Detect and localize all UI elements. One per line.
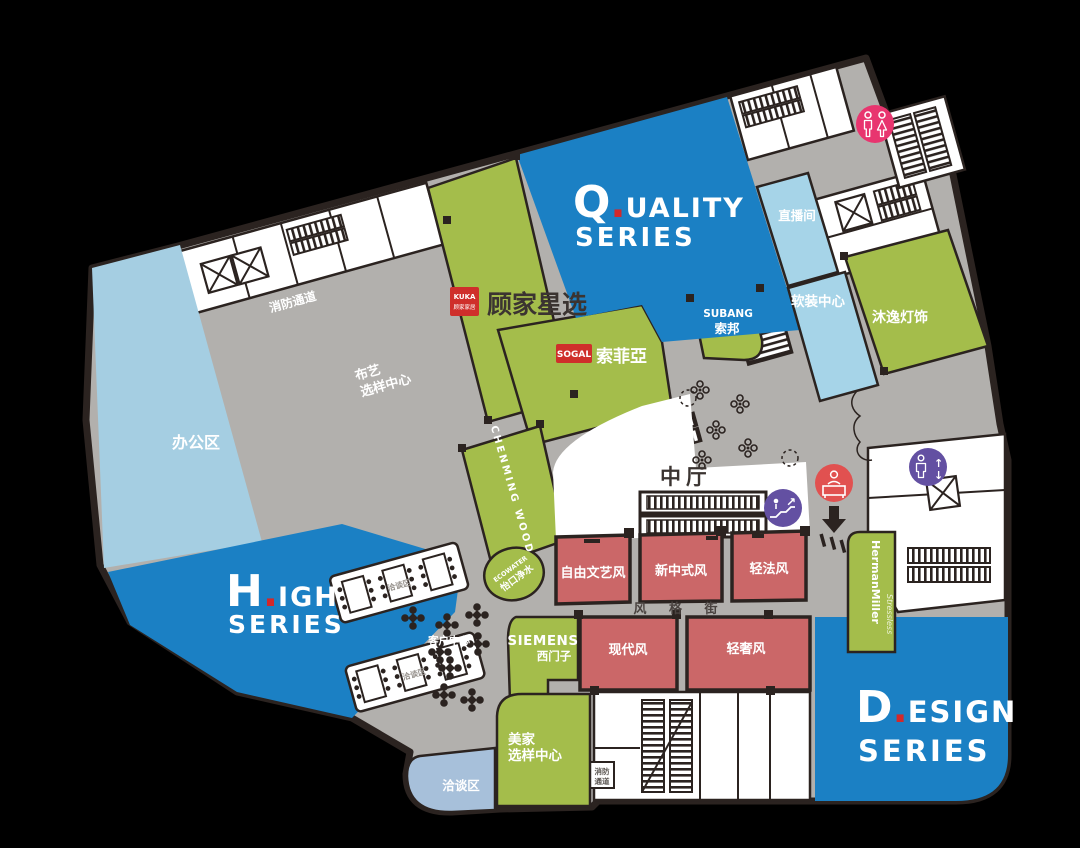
label-hermanmiller: HermanMiller [869, 540, 882, 625]
label-style-street: 风 格 街 [633, 601, 726, 617]
label-meijia-2: 选样中心 [508, 747, 562, 764]
svg-text:KUKA: KUKA [454, 293, 476, 301]
label-room-qingshe: 轻奢风 [726, 641, 765, 657]
floor-plan-svg: ↑ ↓ ↗ Q.UALITY SERIES H.IGH SERIES D.ESI… [0, 0, 1080, 848]
svg-text:顾家家居: 顾家家居 [453, 303, 476, 311]
restroom-icon [856, 105, 894, 143]
label-lounge: 洽谈区 [442, 778, 480, 793]
label-room-qingfa: 轻法风 [749, 561, 788, 577]
label-soft-deco: 软装中心 [791, 293, 845, 310]
staircase [642, 700, 664, 792]
quality-series-sub: SERIES [575, 223, 696, 253]
label-office: 办公区 [172, 433, 220, 452]
label-room-ziyouwenyi: 自由文艺风 [560, 565, 625, 581]
staircase [670, 700, 692, 792]
label-fire-bottom-1: 消防 [595, 766, 610, 776]
label-fire-bottom-2: 通道 [595, 776, 610, 786]
reception-icon [815, 464, 853, 502]
high-series-sub: SERIES [228, 610, 345, 639]
label-live-stream: 直播间 [778, 208, 816, 223]
label-client-center: 客户中心 [427, 634, 470, 647]
kuka-logo: KUKA 顾家家居 [450, 287, 479, 316]
design-series-sub: SERIES [858, 734, 991, 768]
label-room-xinzhongshi: 新中式风 [655, 563, 707, 579]
elevator-box [232, 247, 269, 284]
mall-floor-plan: ↑ ↓ ↗ Q.UALITY SERIES H.IGH SERIES D.ESI… [0, 0, 1080, 848]
label-meijia-1: 美家 [508, 731, 536, 748]
label-room-xiandai: 现代风 [608, 642, 647, 658]
label-central-hall: 中厅 [660, 465, 712, 489]
escalator-icon: ↗ [764, 489, 802, 527]
label-siemens-cn: 西门子 [537, 649, 572, 663]
svg-text:↓: ↓ [934, 469, 943, 482]
label-hermanmiller-sub: Stressless [885, 594, 894, 634]
label-subang-en: SUBANG [703, 308, 753, 320]
label-subang-cn: 索邦 [714, 321, 740, 336]
label-muyi: 沐逸灯饰 [872, 309, 928, 326]
svg-text:SOGAL: SOGAL [557, 350, 591, 360]
sogal-logo: SOGAL [556, 344, 592, 363]
bottom-rooms [590, 692, 810, 800]
label-sogal: 索菲亞 [596, 346, 647, 367]
elevator-icon: ↑ ↓ [909, 448, 947, 486]
escalator-main [640, 492, 766, 537]
svg-text:↗: ↗ [786, 495, 796, 509]
elevator-box [835, 194, 872, 231]
label-kuka-store: 顾家星选 [487, 290, 587, 319]
label-siemens-en: SIEMENS [507, 633, 578, 649]
